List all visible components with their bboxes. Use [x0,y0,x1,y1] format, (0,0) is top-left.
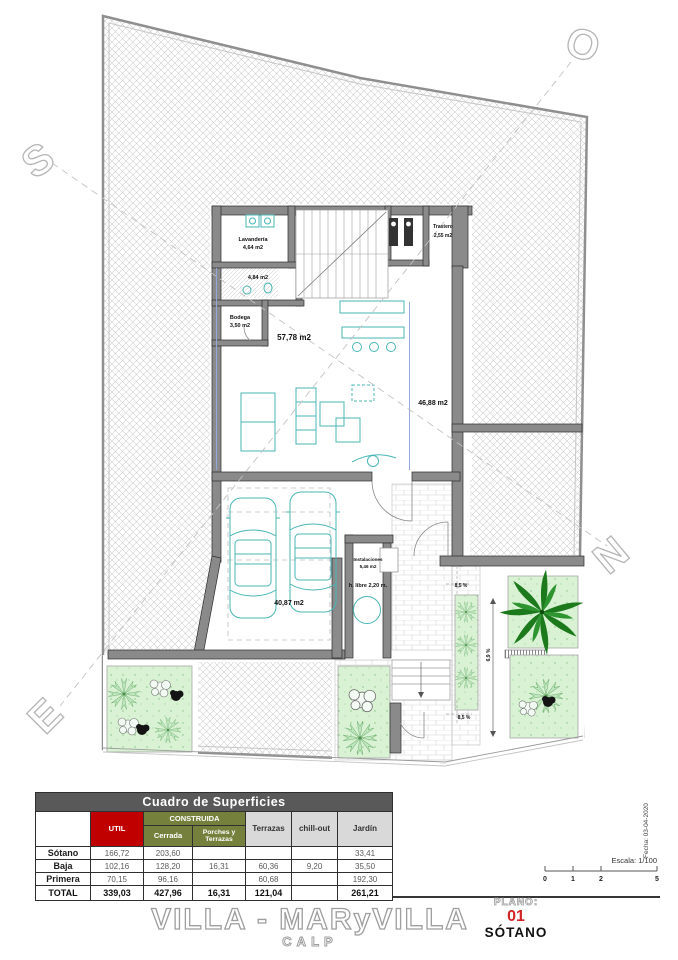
project-title: VILLA - MARyVILLA [151,903,469,936]
table-row: Primera 70,15 96,16 60,68 192,30 [36,873,393,886]
col-header-util: UTIL [91,812,144,847]
scale-tick: 1 [571,876,575,883]
table-cell: 192,30 [338,873,393,886]
table-cell: 166,72 [91,847,144,860]
label-trastero: Trastero [433,224,453,230]
row-label: TOTAL [36,886,91,901]
label-ramp-top: 8,5 % [455,583,468,589]
table-cell: 60,68 [246,873,292,886]
label-salon-area: 57,78 m2 [277,333,311,342]
scale-bar [545,866,657,871]
label-terraza-area: 46,88 m2 [418,400,448,407]
table-cell: 339,03 [91,886,144,901]
label-bodega-area: 3,50 m2 [230,323,250,329]
table-cell: 60,36 [246,860,292,873]
col-header-jardin: Jardín [338,812,393,847]
scale-tick: 5 [655,876,659,883]
row-label: Sótano [36,847,91,860]
table-cell [292,886,338,901]
table-cell: 427,96 [144,886,193,901]
scale-ticks: 0 1 2 5 [543,876,659,883]
compass-s: S [13,133,63,188]
table-cell [246,847,292,860]
table-cell [193,873,246,886]
table-corner-cell [36,812,91,847]
col-header-chillout: chill-out [292,812,338,847]
table-cell: 9,20 [292,860,338,873]
row-label: Primera [36,873,91,886]
scale-tick: 2 [599,876,603,883]
plan-sheet: Lavandería 4,64 m2 4,84 m2 Bodega 3,50 m… [0,0,678,960]
label-lavanderia: Lavandería [238,237,268,243]
row-label: Baja [36,860,91,873]
plano-label: PLANO: [494,897,538,908]
label-instalaciones-area: 5,46 m2 [360,564,377,569]
scale-label: Escala: 1/100 [612,856,657,865]
compass-o: O [560,17,607,72]
label-altura-libre: h. libre 2,20 m. [349,583,388,589]
table-cell [193,847,246,860]
table-cell: 33,41 [338,847,393,860]
table-cell [292,847,338,860]
table-cell: 70,15 [91,873,144,886]
entry-steps [392,660,450,700]
garden-planter-center [338,666,390,758]
label-bodega: Bodega [230,315,251,321]
plano-name: SÓTANO [485,925,548,940]
niche [380,548,398,572]
compass-n: N [584,527,637,583]
table-row-total: TOTAL 339,03 427,96 16,31 121,04 261,21 [36,886,393,901]
col-header-terrazas: Terrazas [246,812,292,847]
label-garaje-area: 40,87 m2 [274,600,304,607]
table-cell: 16,31 [193,860,246,873]
table-cell: 128,20 [144,860,193,873]
stairs [296,210,388,298]
table-cell [292,873,338,886]
compass-e: E [18,689,71,742]
table-cell: 121,04 [246,886,292,901]
garden-left [107,666,192,752]
label-instalaciones: Instalaciones [353,557,383,562]
table-cell: 203,60 [144,847,193,860]
date-label: Fecha: 03-04-2020 [643,803,650,858]
col-group-construida: CONSTRUIDA [144,812,246,826]
table-cell: 102,16 [91,860,144,873]
label-ramp-bottom: 8,5 % [458,715,471,721]
project-subtitle: CALP [282,934,337,949]
table-row: Sótano 166,72 203,60 33,41 [36,847,393,860]
label-bano-area: 4,84 m2 [248,275,268,281]
scale-tick: 0 [543,876,547,883]
surfaces-table: Cuadro de Superficies UTIL CONSTRUIDA Te… [35,792,393,901]
label-lavanderia-area: 4,64 m2 [243,245,263,251]
table-cell: 96,16 [144,873,193,886]
table-cell: 35,50 [338,860,393,873]
table-cell: 16,31 [193,886,246,901]
plano-number: 01 [507,908,525,925]
col-header-cerrada: Cerrada [144,826,193,847]
table-title: Cuadro de Superficies [36,793,393,812]
label-ramp-middle: 6,9 % [486,648,492,661]
table-cell: 261,21 [338,886,393,901]
table-row: Baja 102,16 128,20 16,31 60,36 9,20 35,5… [36,860,393,873]
label-trastero-area: 2,55 m2 [434,233,453,239]
col-header-porches: Porches y Terrazas [193,826,246,847]
